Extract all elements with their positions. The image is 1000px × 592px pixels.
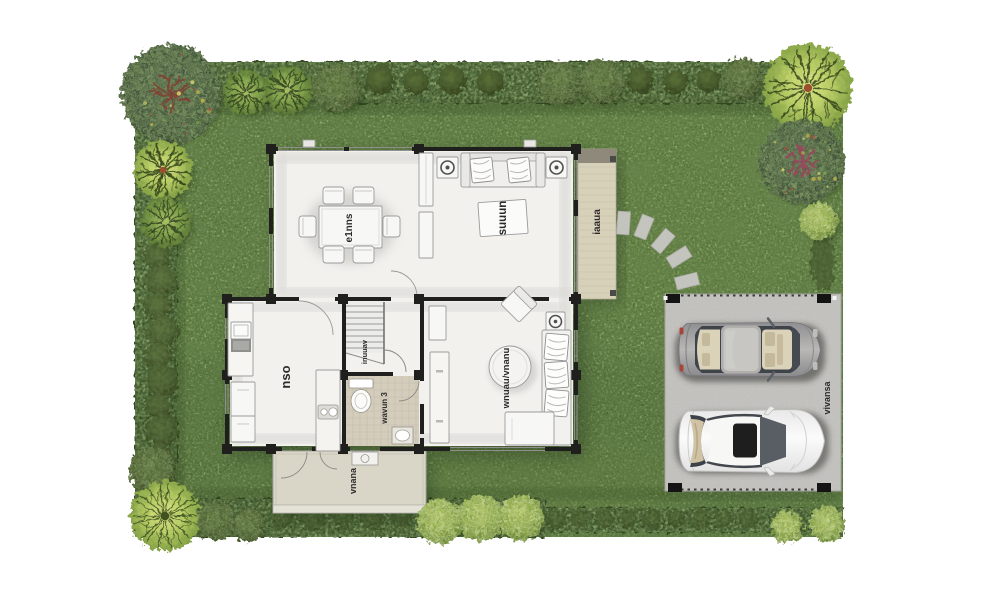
svg-text:inuuav: inuuav xyxy=(360,339,369,364)
svg-text:e1nns: e1nns xyxy=(344,213,355,242)
svg-text:suuun: suuun xyxy=(497,201,509,236)
svg-text:iaaua: iaaua xyxy=(592,209,603,235)
svg-text:wavun 3: wavun 3 xyxy=(380,392,389,425)
svg-text:vivansa: vivansa xyxy=(822,380,832,414)
svg-text:wnuau/vnanu: wnuau/vnanu xyxy=(501,347,512,409)
svg-text:vnana: vnana xyxy=(348,467,358,494)
svg-text:nso: nso xyxy=(278,365,293,388)
